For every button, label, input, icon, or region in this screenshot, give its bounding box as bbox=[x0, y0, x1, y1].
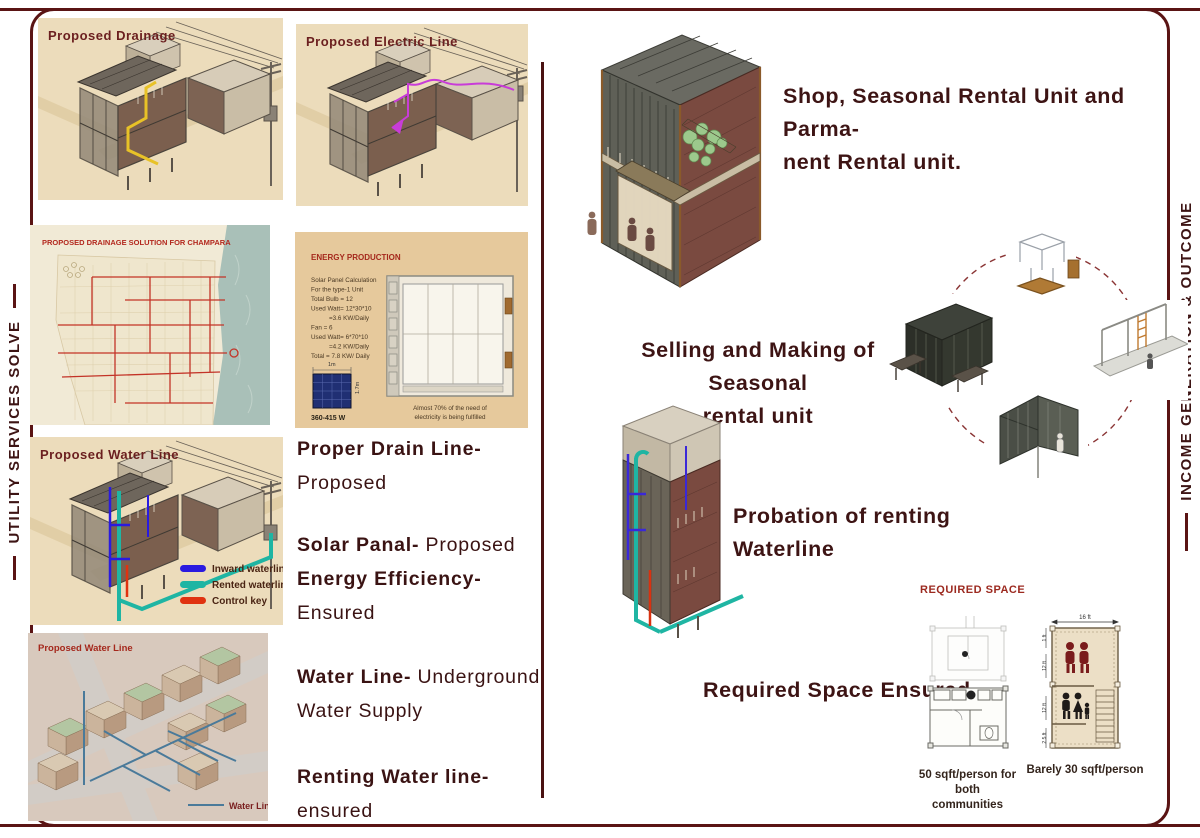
energy-illustration: ENERGY PRODUCTION Solar Panel Calculatio… bbox=[295, 232, 528, 428]
proposed-drainage-panel: Proposed Drainage bbox=[38, 18, 283, 200]
rental-building-illustration bbox=[572, 25, 772, 310]
note-solar-panel: Solar Panal- Proposed Energy Efficiency-… bbox=[297, 528, 542, 630]
presentation-board: UTILITY SERVICES SOLVE INCOME GENERATION… bbox=[0, 0, 1200, 838]
energy-caption-line2: electricity is being fulfilled bbox=[414, 414, 486, 421]
legend-swatch-inward bbox=[180, 565, 206, 572]
proposed-water-line-panel: Inward waterline Rented waterline Contro… bbox=[30, 437, 283, 625]
note-text: Water Supply bbox=[297, 700, 423, 722]
dimension-top: 16 ft bbox=[1052, 615, 1118, 624]
calc-line: Total Bulb = 12 bbox=[311, 296, 353, 303]
required-space-title: REQUIRED SPACE bbox=[920, 584, 1050, 596]
floor-plan-30sqft: 16 ft 1 ft 12 ft 12 ft 2.5 ft bbox=[1040, 612, 1130, 760]
note-water-line: Water Line- Underground Water Supply bbox=[297, 660, 542, 728]
heading-selling-line1: Selling and Making of Seasonal bbox=[641, 338, 875, 395]
roof-plan bbox=[387, 276, 513, 396]
note-text: Underground bbox=[417, 666, 540, 688]
dim-side-label: 1 ft bbox=[1042, 634, 1048, 642]
left-rail-text: UTILITY SERVICES SOLVE bbox=[6, 320, 23, 543]
dim-side-label: 12 ft bbox=[1042, 703, 1048, 713]
note-text: Proposed bbox=[297, 472, 387, 494]
settlement-area bbox=[56, 255, 215, 425]
note-renting-water: Renting Water line- ensured bbox=[297, 760, 542, 828]
calc-line: =4.2 KW/Daily bbox=[329, 344, 370, 351]
note-bold: Water Line- bbox=[297, 666, 411, 688]
dimension-side: 1 ft 12 ft 12 ft 2.5 ft bbox=[1042, 628, 1048, 748]
drainage-illustration: Proposed Drainage bbox=[38, 18, 283, 200]
calc-line: For the type-1 Unit bbox=[311, 287, 363, 294]
rail-dash bbox=[13, 284, 16, 308]
panel-height-label: 1.7m bbox=[355, 381, 361, 394]
caption-50sqft: 50 sqft/person for both communities bbox=[905, 768, 1030, 813]
note-bold: Proper Drain Line- bbox=[297, 438, 482, 460]
note-bold: Renting Water line- bbox=[297, 766, 489, 788]
legend-label: Control key bbox=[212, 596, 267, 607]
calc-line: Fan = 6 bbox=[311, 325, 333, 332]
heading-shop: Shop, Seasonal Rental Unit and Parma- ne… bbox=[783, 80, 1183, 179]
note-bold: Energy Efficiency- bbox=[297, 568, 482, 590]
assembly-cycle-svg bbox=[888, 228, 1188, 480]
floor-plan-50sqft bbox=[922, 614, 1014, 756]
slat-face bbox=[623, 460, 670, 624]
note-bold: Solar Panal- bbox=[297, 534, 419, 556]
rail-dash bbox=[13, 556, 16, 580]
panel-title: Proposed Water Line bbox=[40, 447, 179, 462]
legend-label: Inward waterline bbox=[212, 564, 283, 575]
rental-building-svg bbox=[572, 25, 772, 310]
panel-title: Proposed Electric Line bbox=[306, 34, 458, 49]
water-map-illustration: Water Line Proposed Water Line bbox=[28, 633, 268, 821]
drainage-map: PROPOSED DRAINAGE SOLUTION FOR CHAMPARA bbox=[30, 225, 270, 425]
waterline-building-illustration bbox=[598, 398, 753, 643]
panel-width-label: 1m bbox=[328, 362, 336, 368]
note-text: Proposed bbox=[426, 534, 516, 556]
lower-plan bbox=[928, 686, 1008, 748]
floor-plan-50-svg bbox=[922, 614, 1014, 756]
calc-line: Solar Panel Calculation bbox=[311, 277, 377, 284]
map-title: Proposed Water Line bbox=[38, 643, 133, 654]
heading-shop-line1: Shop, Seasonal Rental Unit and Parma- bbox=[783, 84, 1125, 141]
note-text: ensured bbox=[297, 800, 373, 822]
caption-30sqft: Barely 30 sqft/person bbox=[1023, 763, 1147, 778]
water-line-map-panel: Water Line Proposed Water Line bbox=[28, 633, 268, 821]
legend-swatch-control bbox=[180, 597, 206, 604]
energy-title: ENERGY PRODUCTION bbox=[311, 253, 401, 262]
dim-side-label: 12 ft bbox=[1042, 661, 1048, 671]
energy-production-panel: ENERGY PRODUCTION Solar Panel Calculatio… bbox=[295, 232, 528, 428]
dim-side-label: 2.5 ft bbox=[1042, 732, 1048, 744]
map-title: PROPOSED DRAINAGE SOLUTION FOR CHAMPARA bbox=[42, 238, 231, 247]
caption-line: 50 sqft/person for both bbox=[919, 769, 1016, 796]
legend-swatch-rented bbox=[180, 581, 206, 588]
waterline-building-svg bbox=[598, 398, 753, 643]
calc-line: =3.6 KW/Daily bbox=[329, 315, 370, 322]
upper-plan bbox=[930, 616, 1006, 681]
drainage-map-panel: PROPOSED DRAINAGE SOLUTION FOR CHAMPARA bbox=[30, 225, 270, 425]
plan-marker bbox=[962, 651, 968, 657]
panel-part bbox=[1068, 260, 1079, 278]
water-line-illustration: Inward waterline Rented waterline Contro… bbox=[30, 437, 283, 625]
left-rail-label: UTILITY SERVICES SOLVE bbox=[4, 272, 24, 592]
panel-title: Proposed Drainage bbox=[48, 28, 176, 43]
electric-illustration: Proposed Electric Line bbox=[296, 24, 528, 206]
heading-shop-line2: nent Rental unit. bbox=[783, 150, 962, 174]
note-drain-line: Proper Drain Line- Proposed bbox=[297, 432, 542, 500]
energy-caption-line1: Almost 70% of the need of bbox=[413, 405, 487, 412]
calc-line: Total = 7.8 KW/ Daily bbox=[311, 353, 370, 360]
heading-probation: Probation of renting Waterline bbox=[733, 500, 1053, 566]
rail-dash bbox=[1185, 513, 1188, 551]
calc-line: Used Watt= 12*30*10 bbox=[311, 306, 372, 313]
map-legend-label: Water Line bbox=[229, 801, 268, 811]
proposed-electric-panel: Proposed Electric Line bbox=[296, 24, 528, 206]
assembly-cycle-diagram bbox=[888, 228, 1188, 480]
dim-top-label: 16 ft bbox=[1079, 615, 1091, 621]
brick-face bbox=[670, 460, 720, 624]
legend-label: Rented waterline bbox=[212, 580, 283, 591]
note-text: Ensured bbox=[297, 602, 375, 624]
calc-line: Used Watt= 6*70*10 bbox=[311, 334, 368, 341]
floor-plan-30-svg: 16 ft 1 ft 12 ft 12 ft 2.5 ft bbox=[1040, 612, 1130, 760]
panel-rating: 360-415 W bbox=[311, 415, 346, 422]
caption-line: communities bbox=[932, 799, 1003, 811]
